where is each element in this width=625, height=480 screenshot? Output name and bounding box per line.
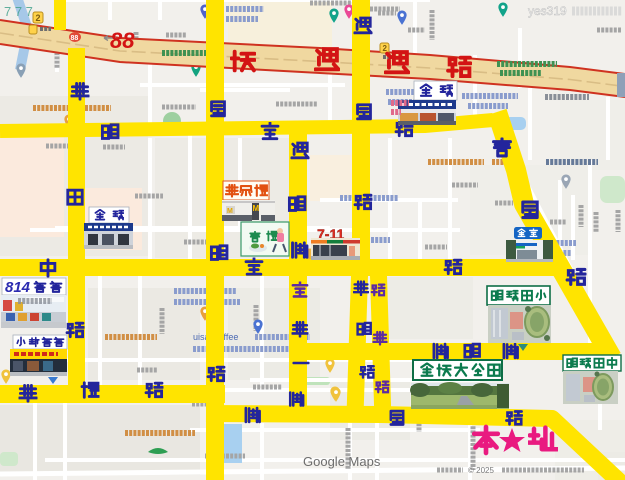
svg-text:814: 814	[5, 279, 31, 296]
svg-text:© 2025: © 2025	[468, 466, 494, 475]
svg-text:M: M	[227, 208, 233, 215]
svg-text:2: 2	[383, 44, 388, 53]
svg-text:2: 2	[36, 13, 41, 23]
svg-text:7 7 7: 7 7 7	[4, 4, 33, 19]
svg-text:88: 88	[71, 35, 79, 42]
svg-text:yes319: yes319	[528, 4, 567, 18]
svg-text:M: M	[253, 204, 260, 213]
svg-text:Google Maps: Google Maps	[303, 454, 381, 469]
svg-text:88: 88	[110, 28, 135, 53]
